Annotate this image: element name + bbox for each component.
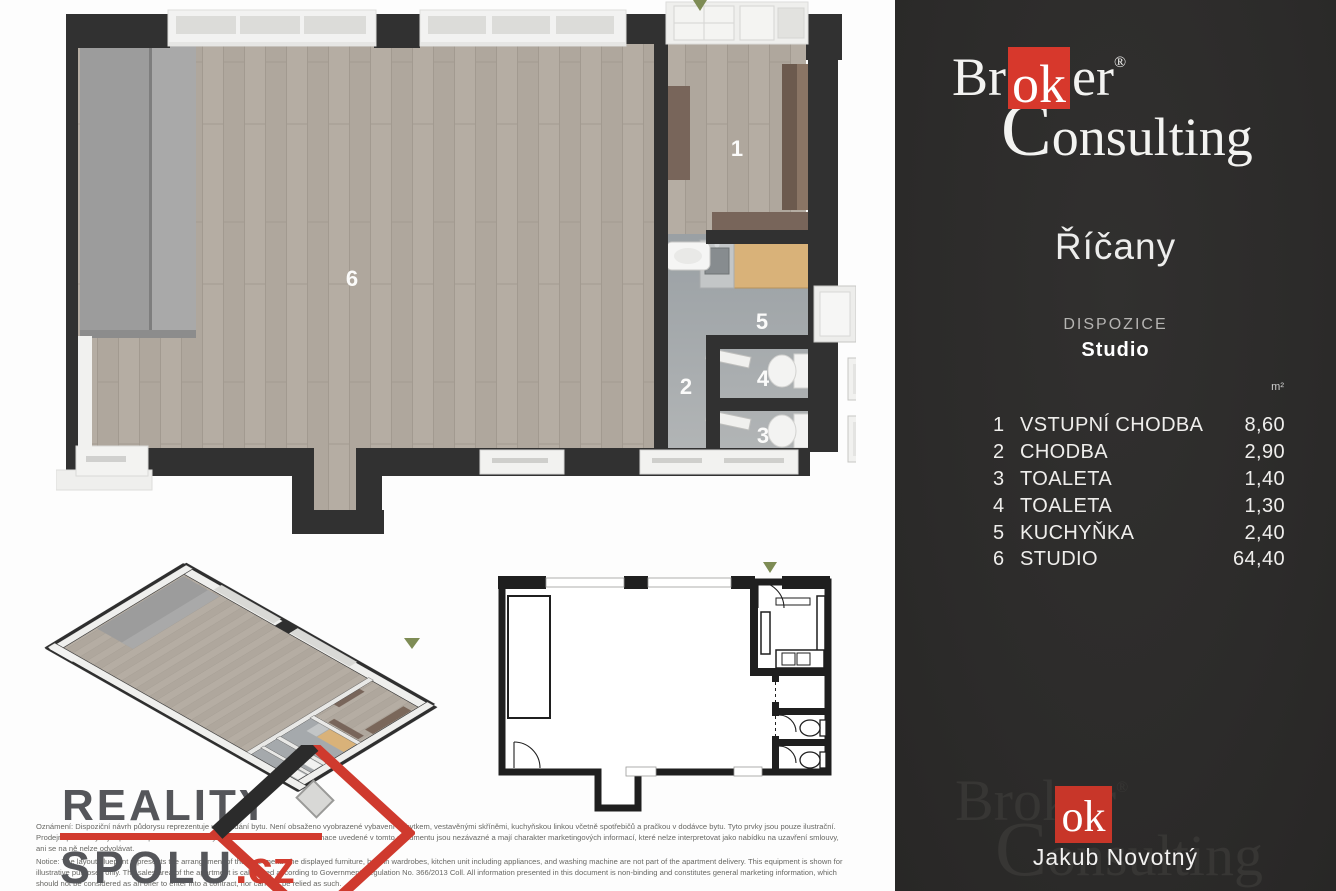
entry-arrow-icon	[404, 638, 420, 649]
window	[420, 10, 626, 46]
section-label: DISPOZICE	[895, 316, 1336, 334]
washbasin	[666, 242, 710, 270]
window	[480, 450, 564, 474]
floor-plan-flyer: 1 6 5 2 4 3	[0, 0, 1336, 891]
wardrobe-outline	[508, 596, 550, 718]
table-row: 2 CHODBA 2,90	[993, 439, 1285, 466]
unit-header: m²	[1271, 381, 1284, 393]
window	[168, 10, 376, 46]
logo-text: Br	[952, 47, 1006, 107]
wardrobe	[80, 46, 196, 338]
table-row: 4 TOALETA 1,30	[993, 493, 1285, 520]
table-row: 3 TOALETA 1,40	[993, 466, 1285, 493]
door-leaf	[814, 286, 856, 342]
room-label-5: 5	[756, 309, 768, 334]
city-title: Říčany	[895, 226, 1336, 268]
window	[78, 336, 92, 450]
room-label-1: 1	[731, 136, 743, 161]
toilet-icon	[768, 354, 810, 388]
entrance-door	[666, 2, 808, 44]
entry-arrow-icon	[763, 562, 777, 573]
registered-mark: ®	[1114, 54, 1126, 71]
ok-red-square: ok	[1008, 47, 1070, 109]
ok-red-square: ok	[1055, 786, 1112, 843]
window	[640, 450, 798, 474]
broker-consulting-logo: Broker® Consulting	[895, 40, 1336, 168]
window-shutter	[848, 358, 856, 462]
room-label-2: 2	[680, 374, 692, 399]
house-diamond-icon	[205, 745, 415, 891]
layout-type: Studio	[895, 339, 1336, 362]
table-row: 5 KUCHYŇKA 2,40	[993, 520, 1285, 547]
agent-name: Jakub Novotný	[895, 844, 1336, 871]
room-label-4: 4	[757, 366, 770, 391]
toilet-icon	[768, 414, 810, 448]
blueprint-2d-plan	[478, 558, 858, 858]
info-side-panel: Broker® Consulting Říčany DISPOZICE Stud…	[895, 0, 1336, 891]
room-label-3: 3	[757, 423, 769, 448]
table-row: 6 STUDIO 64,40	[993, 546, 1285, 573]
room-label-6: 6	[346, 266, 358, 291]
kitchen-counter	[734, 240, 810, 288]
table-row: 1 VSTUPNÍ CHODBA 8,60	[993, 412, 1285, 439]
room-area-table: 1 VSTUPNÍ CHODBA 8,60 2 CHODBA 2,90 3 TO…	[993, 412, 1285, 573]
main-floor-plan: 1 6 5 2 4 3	[56, 0, 856, 560]
